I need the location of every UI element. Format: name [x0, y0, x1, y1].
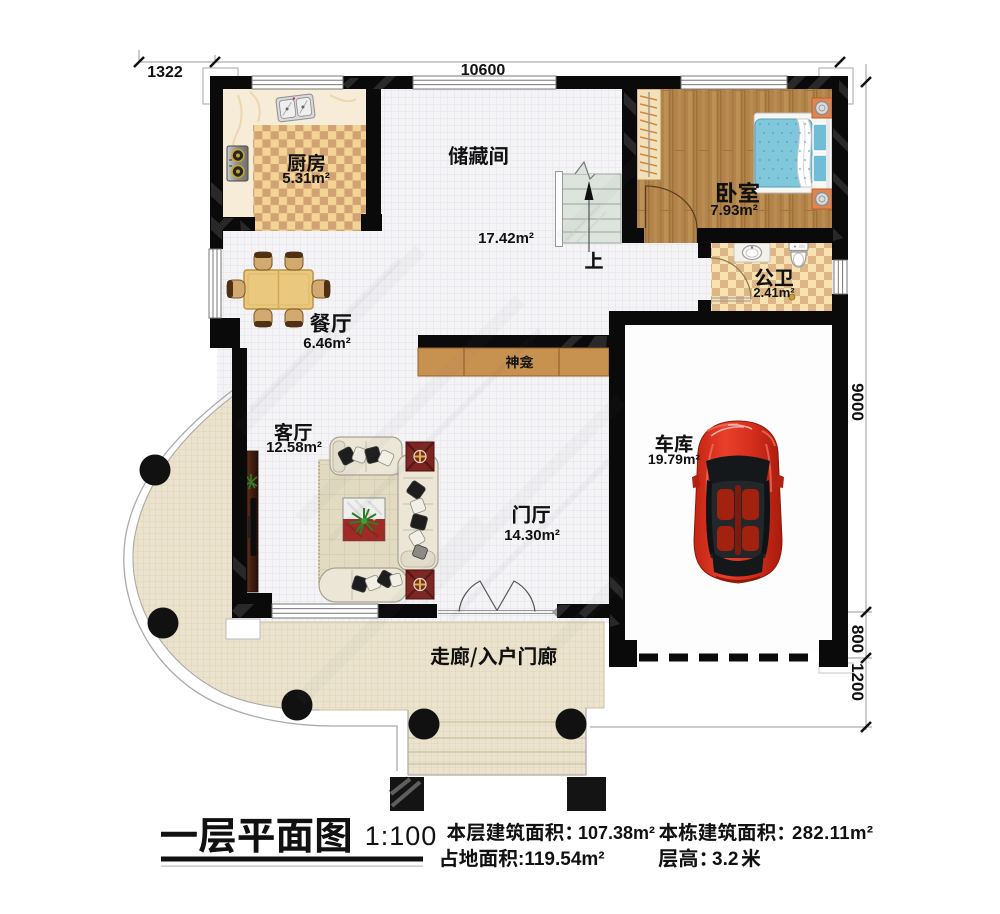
- svg-text::119.54m²: :119.54m²: [518, 849, 605, 870]
- svg-text:282.11m²: 282.11m²: [792, 822, 873, 843]
- svg-text:7.93m²: 7.93m²: [710, 202, 758, 219]
- svg-text:1322: 1322: [147, 64, 183, 81]
- svg-text:3.2: 3.2: [712, 849, 738, 870]
- svg-text:9000: 9000: [848, 383, 867, 421]
- svg-text:2.41m²: 2.41m²: [753, 285, 795, 300]
- svg-text:6.46m²: 6.46m²: [303, 335, 351, 352]
- svg-text:10600: 10600: [461, 62, 506, 79]
- svg-text:1:100: 1:100: [365, 821, 438, 851]
- svg-text:12.58m²: 12.58m²: [266, 439, 322, 456]
- svg-text:5.31m²: 5.31m²: [282, 170, 330, 187]
- svg-text:1200: 1200: [848, 663, 867, 701]
- svg-text:800: 800: [848, 625, 867, 653]
- svg-text:14.30m²: 14.30m²: [504, 527, 560, 544]
- svg-text:19.79m²: 19.79m²: [648, 451, 700, 467]
- svg-text:107.38m²: 107.38m²: [578, 823, 655, 843]
- svg-text:17.42m²: 17.42m²: [478, 230, 534, 247]
